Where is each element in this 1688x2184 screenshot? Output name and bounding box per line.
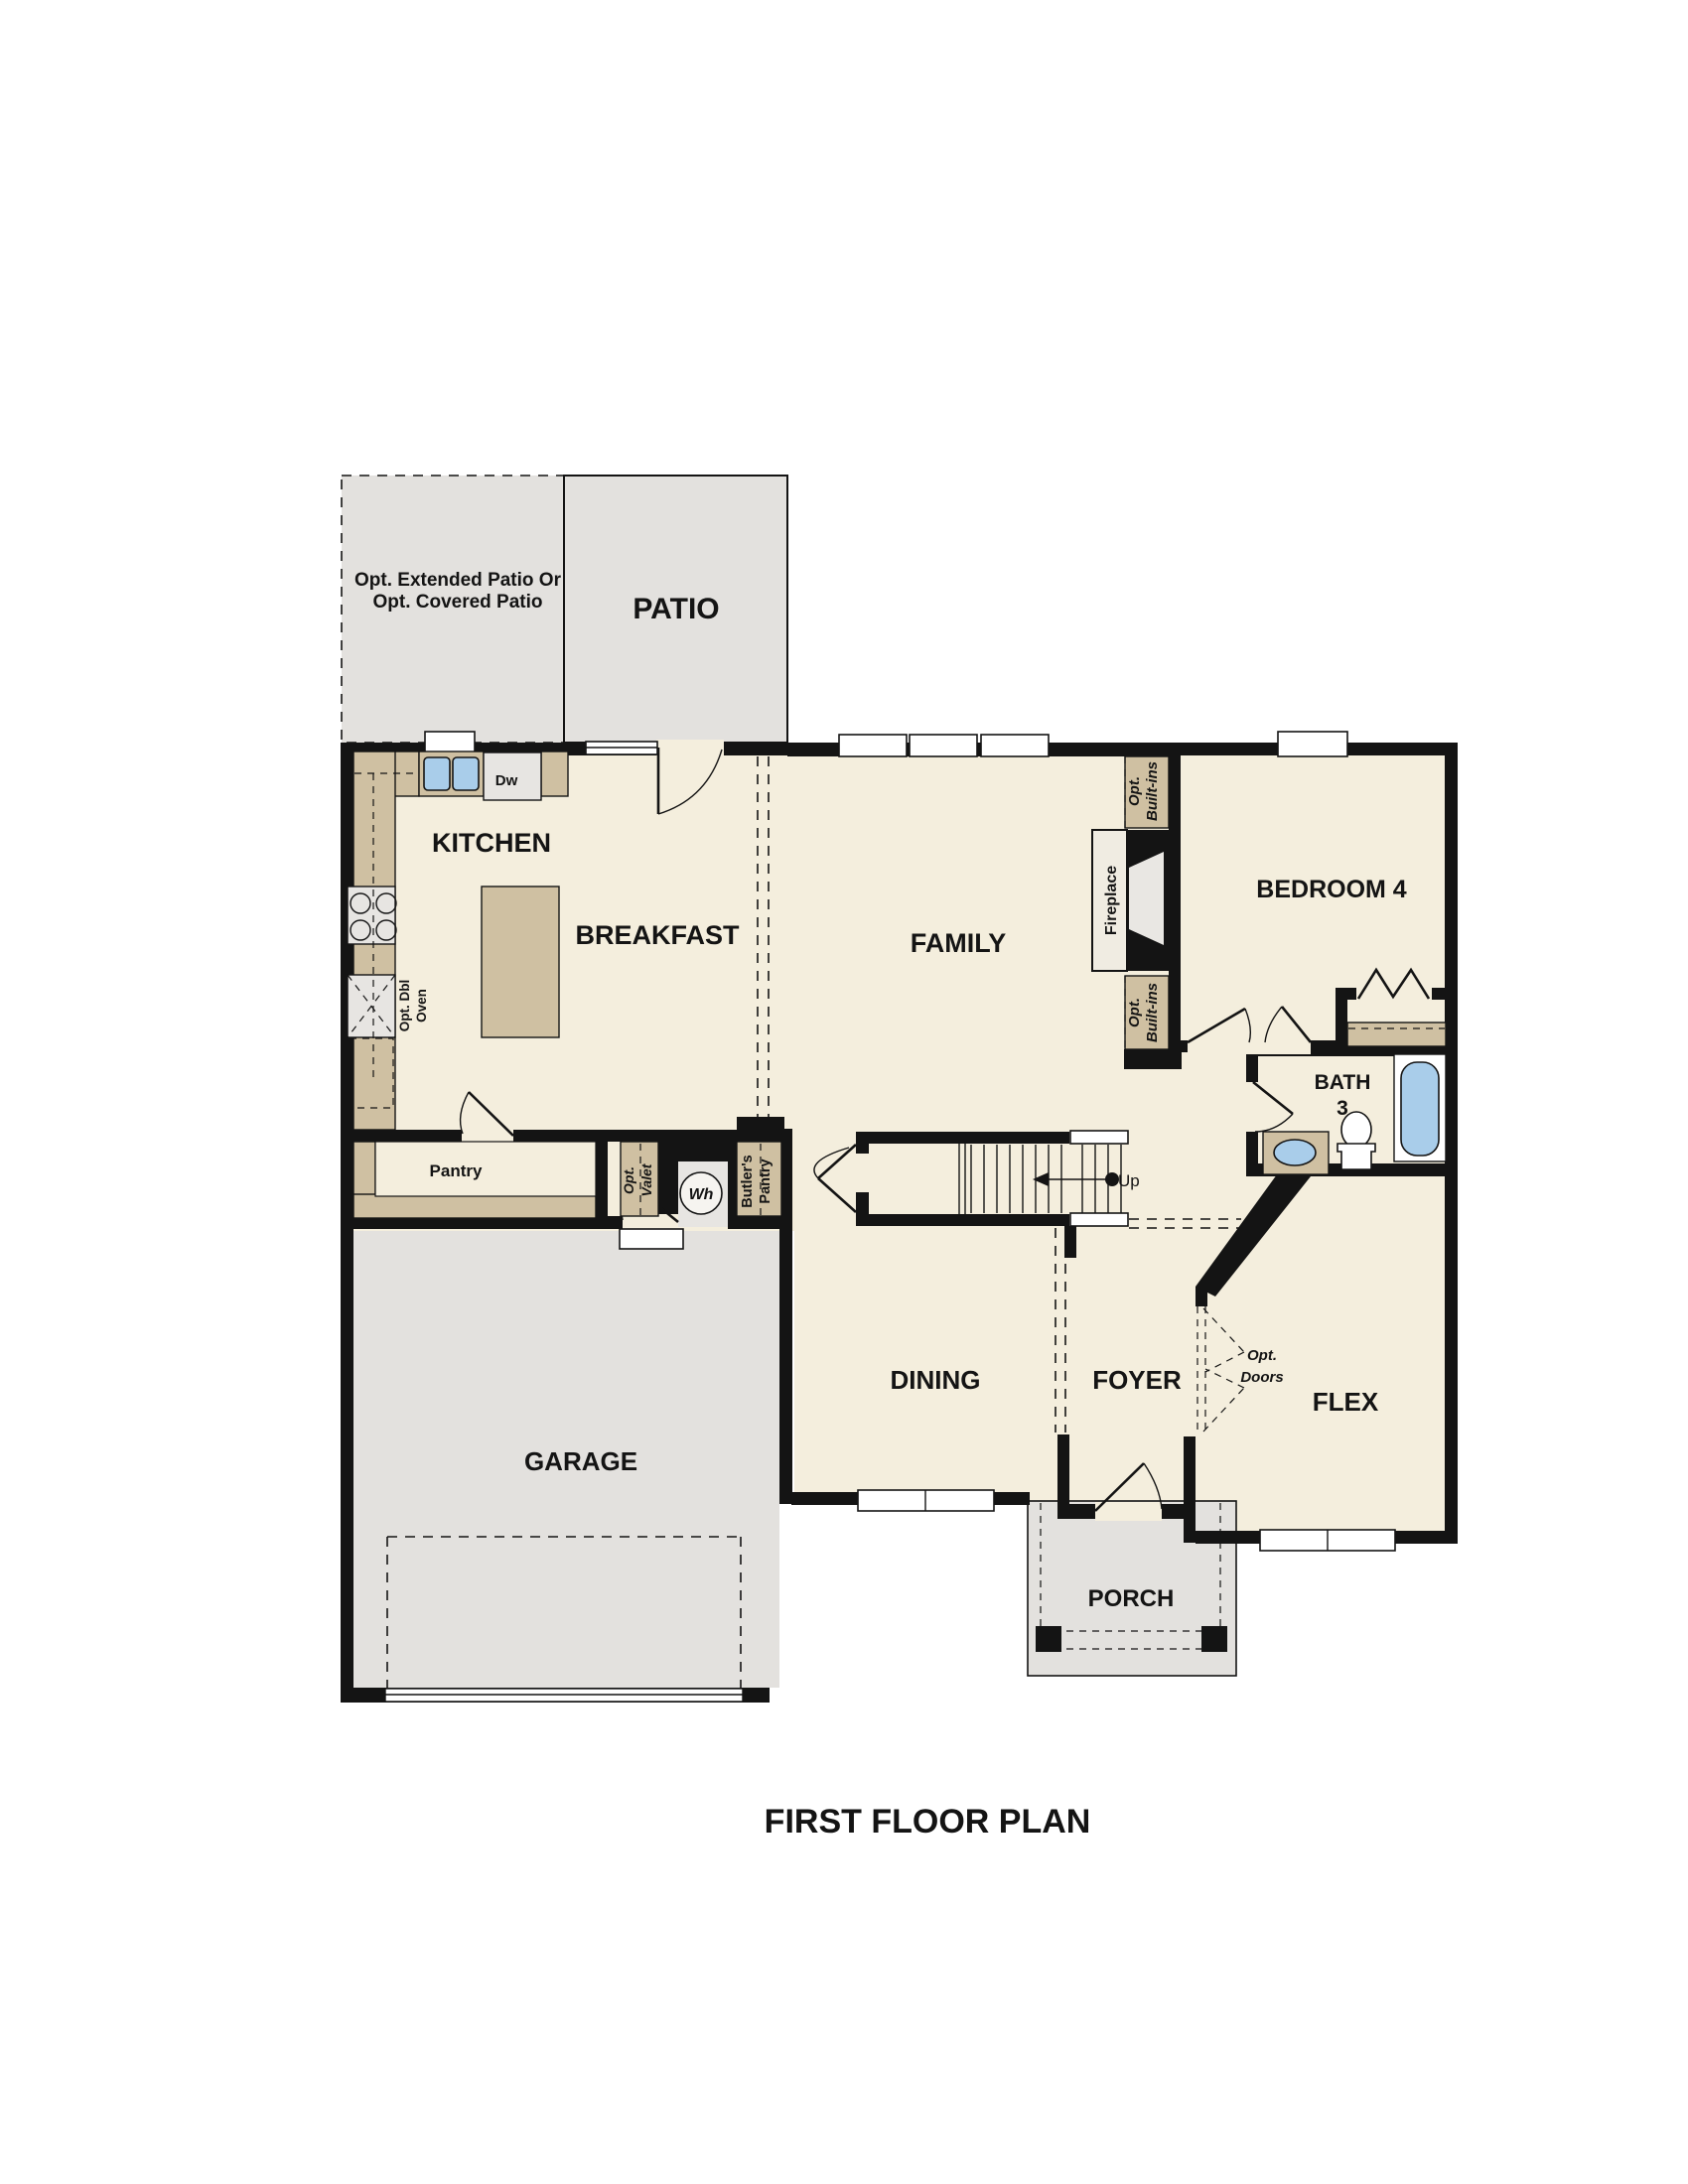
closet-shelf: [1347, 1023, 1446, 1046]
wall-segment: [856, 1132, 1069, 1144]
bedroom-window: [1278, 732, 1347, 756]
pantry-shelf: [353, 1194, 596, 1218]
porch-post: [1036, 1626, 1061, 1652]
opt-dbl-oven-label: Opt. Dbl: [397, 980, 412, 1032]
wall-segment: [1064, 1226, 1076, 1258]
floor-plan-page: Opt. Extended Patio Or Opt. Covered Pati…: [0, 0, 1688, 2184]
kitchen-counter: [541, 751, 568, 796]
front-door-opening: [1095, 1502, 1162, 1521]
wall-segment: [1057, 1434, 1069, 1519]
bedroom4-label: BEDROOM 4: [1256, 876, 1407, 903]
wall-segment: [1184, 1436, 1196, 1543]
wall-segment: [1169, 754, 1181, 1049]
pantry-interior: [375, 1142, 596, 1196]
opt-dbl-oven-label: Oven: [414, 989, 429, 1023]
stairs-up-label: Up: [1118, 1171, 1140, 1190]
wall-segment: [856, 1214, 1069, 1226]
kitchen-label: KITCHEN: [432, 828, 551, 858]
opt-doors-label: Opt.: [1247, 1347, 1277, 1364]
wall-segment: [1196, 1287, 1207, 1306]
pantry-label: Pantry: [430, 1161, 483, 1180]
family-window: [981, 735, 1049, 756]
flex-label: FLEX: [1313, 1387, 1379, 1417]
toilet-base: [1337, 1144, 1375, 1169]
fireplace-label: Fireplace: [1103, 866, 1120, 935]
wall-segment: [658, 1142, 678, 1223]
opt-doors-label: Doors: [1240, 1369, 1283, 1386]
opt-builtins-label: Built-ins: [1144, 983, 1161, 1042]
bath-door-opening: [1244, 1082, 1260, 1132]
opt-patio-label: Opt. Covered Patio: [372, 592, 542, 613]
garage-step: [620, 1229, 683, 1249]
butlers-pantry-label: Pantry: [758, 1159, 774, 1203]
opt-builtins-label: Opt.: [1126, 776, 1143, 806]
family-window: [839, 735, 907, 756]
butlers-pantry-label: Butler's: [740, 1155, 756, 1207]
porch-post: [1201, 1626, 1227, 1652]
dining-label: DINING: [891, 1365, 981, 1395]
wall-segment: [728, 1216, 792, 1229]
vanity-sink: [1274, 1140, 1316, 1165]
opt-valet-label: Valet: [638, 1162, 654, 1196]
opt-patio-label: Opt. Extended Patio Or: [354, 570, 562, 591]
page-title: FIRST FLOOR PLAN: [765, 1803, 1091, 1841]
bath3-label: BATH: [1315, 1071, 1371, 1094]
wall-segment: [737, 1117, 784, 1142]
opt-valet-label: Opt.: [621, 1166, 636, 1194]
garage-label: GARAGE: [524, 1446, 637, 1476]
bath3-label: 3: [1336, 1097, 1348, 1120]
breakfast-label: BREAKFAST: [575, 920, 740, 950]
patio-label: PATIO: [633, 593, 719, 625]
family-window: [910, 735, 977, 756]
water-heater-label: Wh: [689, 1186, 714, 1203]
wall-segment: [596, 1142, 608, 1226]
up-arrow-dot: [1105, 1172, 1119, 1186]
dishwasher-label: Dw: [495, 772, 518, 789]
opt-builtins-label: Built-ins: [1144, 761, 1161, 821]
bathtub: [1401, 1062, 1439, 1156]
family-label: FAMILY: [911, 928, 1007, 958]
wall-segment: [1445, 743, 1458, 1544]
patio-door-opening: [656, 740, 724, 758]
kitchen-sink-basin: [453, 757, 479, 790]
wall-segment: [856, 1132, 869, 1154]
wall-segment: [728, 1142, 737, 1223]
porch-label: PORCH: [1088, 1585, 1175, 1612]
kitchen-sink-basin: [424, 757, 450, 790]
stair-railing: [1070, 1213, 1128, 1226]
floor-plan-svg: Opt. Extended Patio Or Opt. Covered Pati…: [0, 0, 1688, 2184]
opt-builtins-label: Opt.: [1126, 998, 1143, 1027]
kitchen-island: [482, 887, 559, 1037]
wall-segment: [1169, 1040, 1188, 1052]
foyer-label: FOYER: [1092, 1365, 1182, 1395]
stair-railing: [1070, 1131, 1128, 1144]
firebox: [1129, 852, 1164, 945]
wall-segment: [856, 1192, 869, 1226]
